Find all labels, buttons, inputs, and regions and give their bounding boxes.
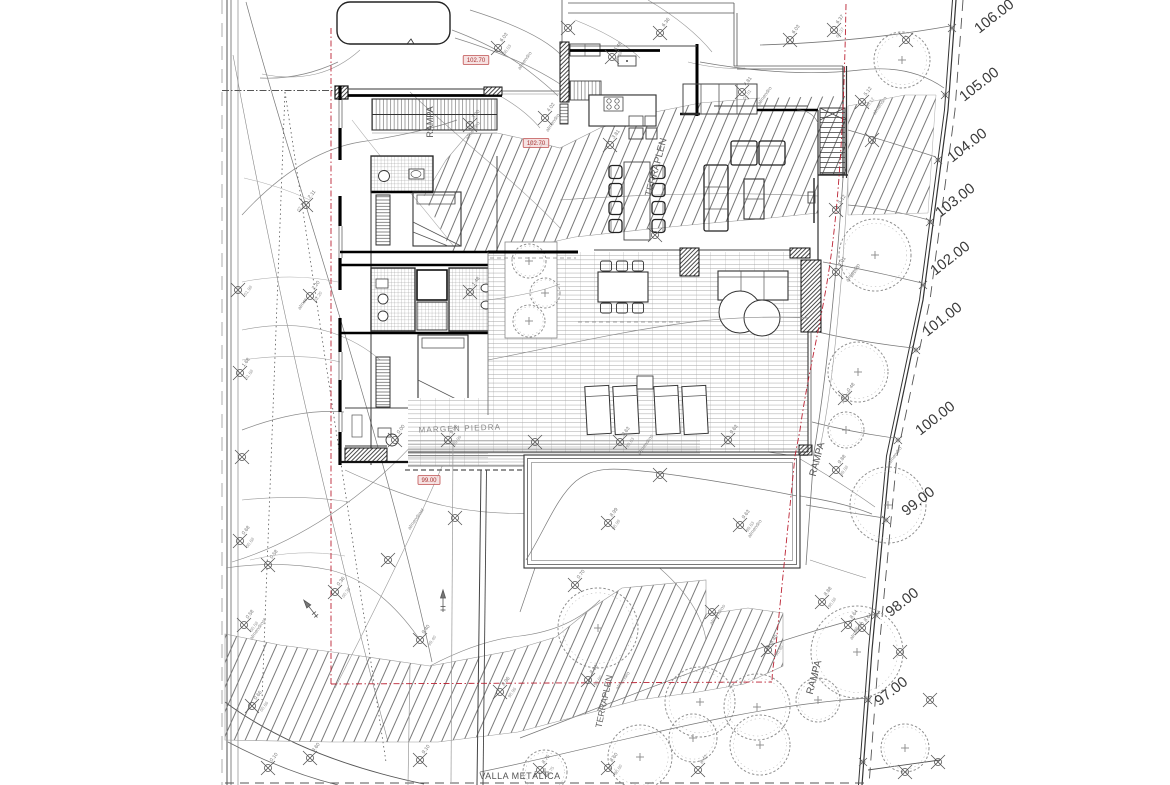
- svg-text:102.70: 102.70: [467, 58, 486, 64]
- svg-text:VALLA METÁLICA: VALLA METÁLICA: [479, 771, 560, 781]
- svg-text:102.70: 102.70: [527, 141, 546, 147]
- svg-text:99.00: 99.00: [421, 478, 437, 484]
